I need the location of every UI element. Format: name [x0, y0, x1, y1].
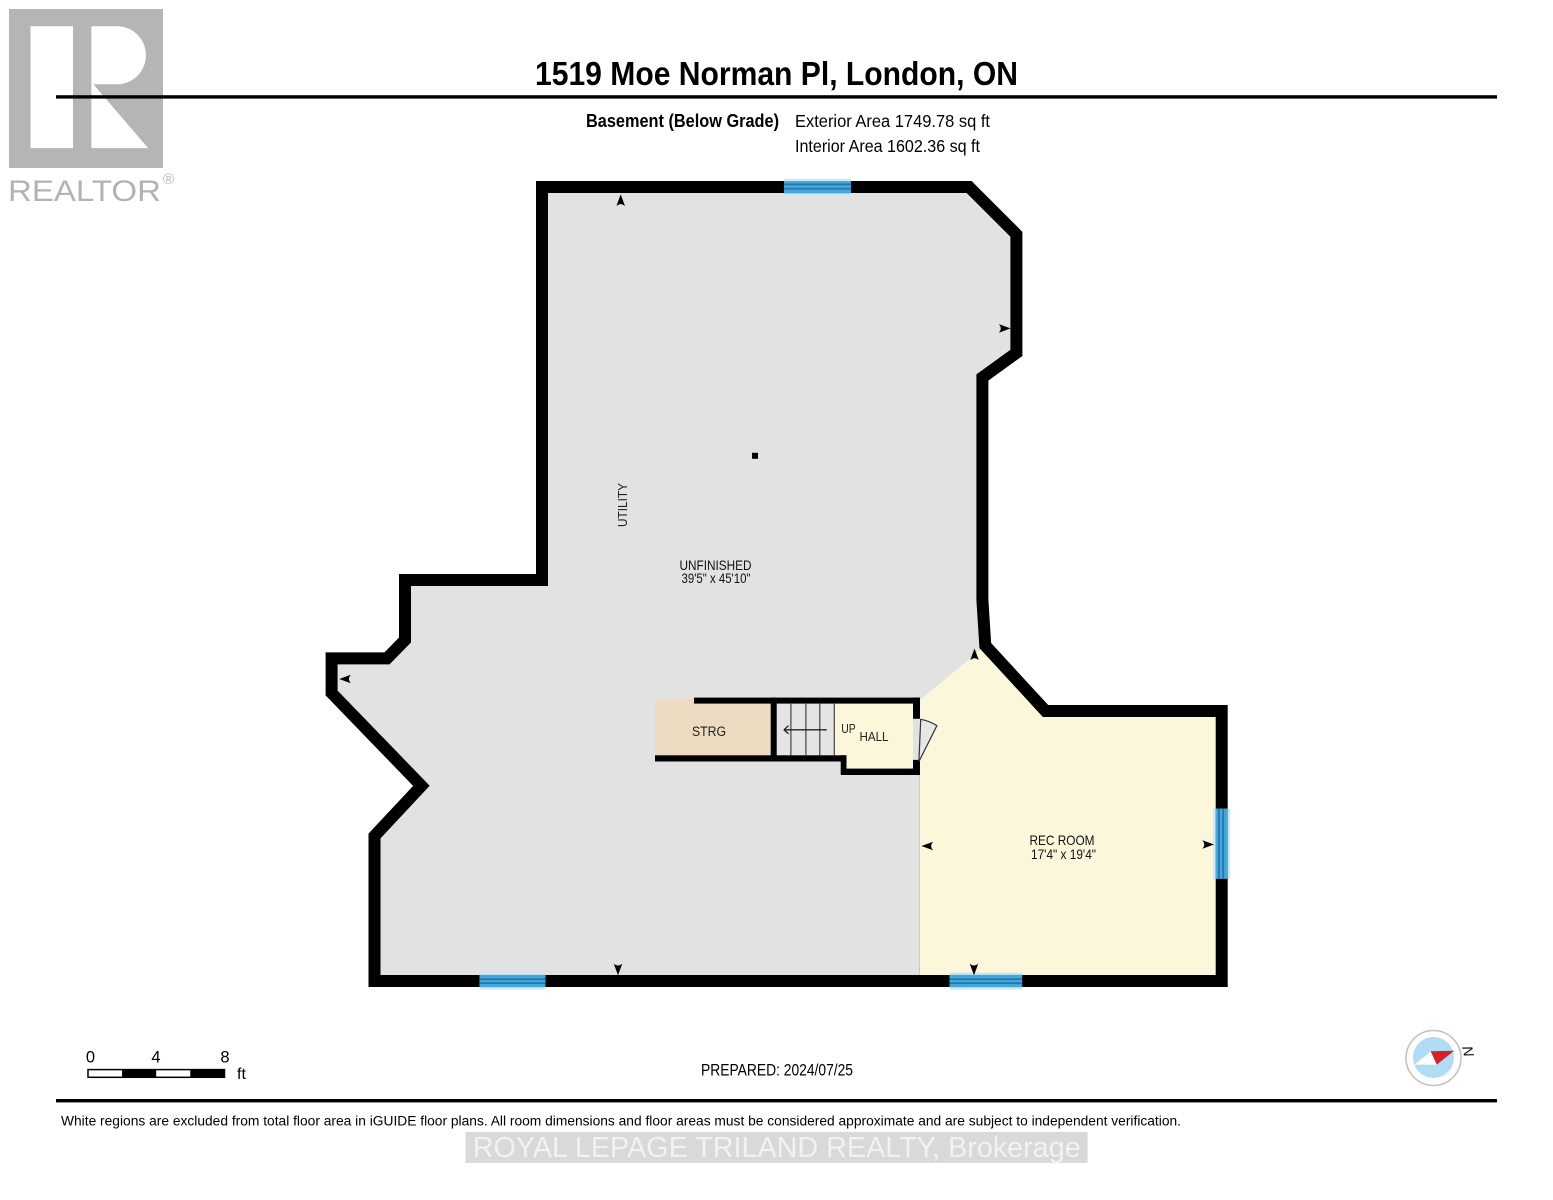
svg-text:Interior Area 1602.36 sq ft: Interior Area 1602.36 sq ft: [795, 136, 980, 156]
svg-text:STRG: STRG: [692, 724, 726, 739]
svg-text:White regions are excluded fro: White regions are excluded from total fl…: [61, 1114, 1181, 1129]
svg-text:39'5" x 45'10": 39'5" x 45'10": [682, 571, 751, 586]
svg-text:HALL: HALL: [860, 729, 889, 744]
svg-text:4: 4: [151, 1048, 160, 1066]
svg-text:REC ROOM: REC ROOM: [1030, 832, 1095, 848]
svg-text:ft: ft: [237, 1066, 246, 1083]
svg-text:Basement (Below Grade): Basement (Below Grade): [586, 111, 779, 131]
svg-text:1519 Moe Norman Pl, London, ON: 1519 Moe Norman Pl, London, ON: [535, 55, 1018, 92]
svg-text:PREPARED: 2024/07/25: PREPARED: 2024/07/25: [701, 1062, 853, 1080]
svg-text:UP: UP: [841, 722, 856, 736]
svg-text:REALTOR: REALTOR: [8, 175, 161, 208]
svg-text:8: 8: [220, 1048, 229, 1066]
svg-text:ROYAL LEPAGE TRILAND REALTY, B: ROYAL LEPAGE TRILAND REALTY, Brokerage: [473, 1132, 1081, 1164]
svg-text:UTILITY: UTILITY: [615, 483, 630, 527]
svg-text:0: 0: [86, 1048, 95, 1066]
svg-text:®: ®: [163, 171, 174, 188]
svg-text:N: N: [1458, 1045, 1476, 1059]
svg-text:Exterior Area 1749.78 sq ft: Exterior Area 1749.78 sq ft: [795, 111, 990, 131]
svg-text:17'4" x 19'4": 17'4" x 19'4": [1031, 847, 1096, 862]
